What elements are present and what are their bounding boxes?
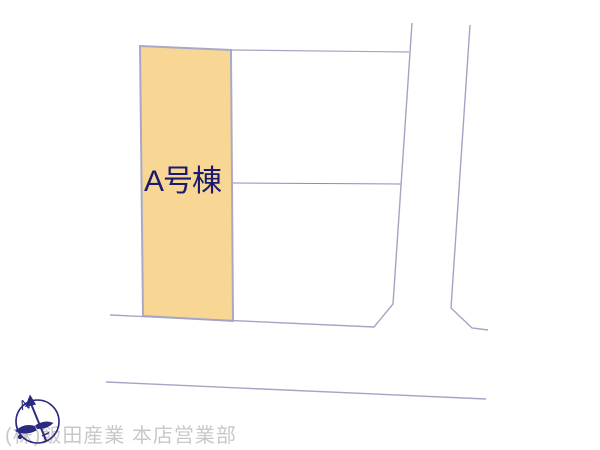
compass-icon: N xyxy=(0,0,600,450)
compass-tail-dot-icon xyxy=(18,435,22,439)
compass-left-wing-icon xyxy=(15,425,37,434)
plot-diagram-canvas: A号棟 (株)飯田産業 本店営業部 N xyxy=(0,0,600,450)
